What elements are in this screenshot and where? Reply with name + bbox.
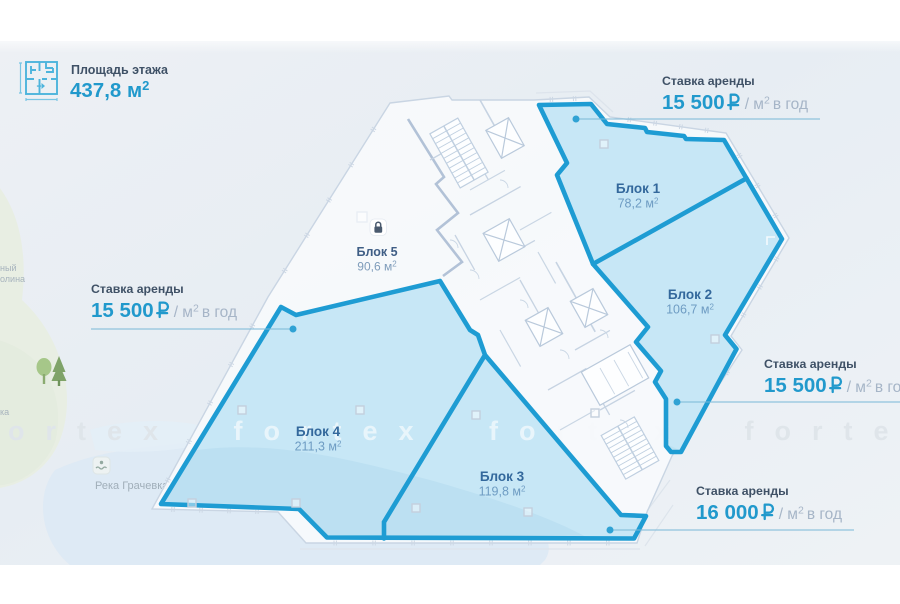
svg-text:Ставка аренды: Ставка аренды (662, 74, 755, 88)
svg-text:Ставка аренды: Ставка аренды (696, 484, 789, 498)
svg-text:211,3 м2: 211,3 м2 (295, 440, 342, 454)
svg-text:ный: ный (0, 263, 16, 273)
svg-text:Блок 5: Блок 5 (356, 245, 397, 259)
svg-text:олина: олина (0, 274, 25, 284)
svg-text:16 000: 16 000 (696, 501, 759, 524)
svg-text:Река Грачевка: Река Грачевка (95, 480, 169, 492)
svg-text:Блок 4: Блок 4 (296, 424, 341, 439)
svg-text:Блок 1: Блок 1 (616, 181, 661, 196)
svg-text:Блок 3: Блок 3 (480, 469, 525, 484)
svg-text:Ставка аренды: Ставка аренды (764, 357, 857, 371)
svg-text:/ м2в год: / м2в год (745, 95, 808, 114)
svg-text:Площадь этажа: Площадь этажа (71, 63, 169, 77)
svg-text:90,6 м2: 90,6 м2 (357, 260, 397, 274)
svg-text:119,8 м2: 119,8 м2 (479, 485, 526, 499)
svg-text:15 500: 15 500 (764, 374, 827, 397)
svg-text:15 500: 15 500 (662, 91, 725, 114)
svg-text:Ставка аренды: Ставка аренды (91, 282, 184, 296)
svg-text:/ м2в год: / м2в год (779, 505, 842, 524)
svg-text:Блок 2: Блок 2 (668, 287, 712, 302)
svg-text:78,2 м2: 78,2 м2 (618, 197, 659, 211)
svg-text:106,7 м2: 106,7 м2 (666, 303, 714, 317)
svg-text:437,8 м2: 437,8 м2 (70, 78, 149, 102)
svg-text:/ м2в год: / м2в год (174, 303, 237, 322)
svg-text:15 500: 15 500 (91, 299, 154, 322)
